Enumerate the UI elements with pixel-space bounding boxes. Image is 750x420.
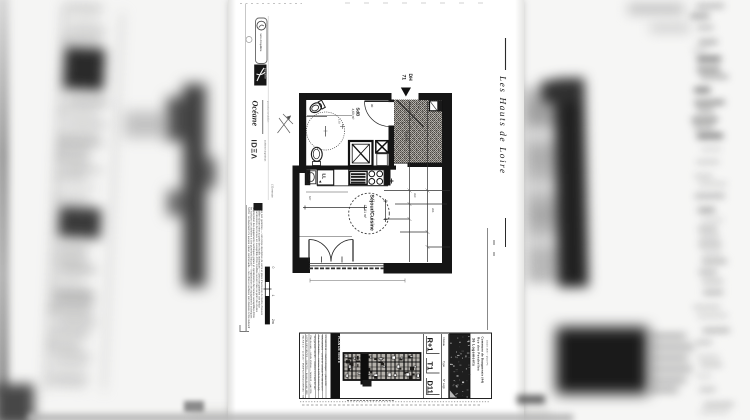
svg-text:1: 1 [271, 295, 275, 297]
svg-text:71: 71 [401, 75, 407, 81]
svg-text:Entrée: Entrée [405, 132, 409, 142]
svg-text:2m: 2m [271, 319, 275, 324]
svg-text:17,81 m²: 17,81 m² [363, 205, 367, 219]
svg-text:NOTA : ce document n'a aucune: NOTA : ce document n'a aucune valeur con… [247, 207, 250, 328]
svg-text:PC 044.020.19 — études techniq: PC 044.020.19 — études techniques — phas… [324, 336, 327, 387]
svg-text:36 logements collectifs — rési: 36 logements collectifs — résidence Les … [313, 336, 316, 391]
svg-text:Rue des Pendrelles — commune d: Rue des Pendrelles — commune de BOUGUENA… [317, 336, 320, 391]
svg-text:Séjour/Cuisine: Séjour/Cuisine [369, 195, 375, 231]
svg-text:LL: LL [322, 174, 327, 180]
svg-text:Type: Type [442, 361, 446, 368]
svg-text:L’Ormeraie: L’Ormeraie [271, 184, 275, 198]
svg-text:Les Hauts de Loire: Les Hauts de Loire [498, 75, 508, 175]
svg-text:Plan de vente — échelle 1/50èm: Plan de vente — échelle 1/50ème — format… [309, 336, 312, 395]
svg-text:N° Logt.: N° Logt. [442, 379, 446, 389]
svg-text:R+1: R+1 [426, 338, 435, 352]
svg-text:0: 0 [271, 267, 275, 269]
svg-text:36 Logements: 36 Logements [472, 338, 476, 366]
svg-text:IND A B C D — 12.05.06 — MODIF: IND A B C D — 12.05.06 — MODIFICATIONS D… [302, 336, 305, 400]
svg-text:Niveau: Niveau [442, 338, 446, 347]
svg-text:Commune de Bouguenais (44): Commune de Bouguenais (44) [481, 337, 485, 384]
svg-text:Rue des Pendrelles: Rue des Pendrelles [476, 337, 480, 371]
svg-text:cotes non garanties — voir not: cotes non garanties — voir notice descri… [260, 207, 263, 316]
svg-text:PLAN DE VENTE: PLAN DE VENTE [337, 336, 341, 364]
svg-text:90: 90 [370, 104, 374, 108]
svg-text:et canalisations des locaux es: et canalisations des locaux est suscepti… [255, 207, 258, 313]
svg-text:dossier 1808 — phase PC: dossier 1808 — phase PC [486, 340, 489, 366]
svg-text:265: 265 [431, 208, 434, 213]
svg-text:1,50: 1,50 [338, 119, 341, 124]
svg-text:architectes ingénieurs: architectes ingénieurs [264, 140, 267, 162]
svg-text:507: 507 [308, 196, 311, 201]
svg-text:terre d’équilibre: terre d’équilibre [259, 34, 262, 52]
svg-text:SdB: SdB [356, 108, 361, 117]
svg-text:350: 350 [413, 193, 416, 198]
svg-text:4,60 m²: 4,60 m² [351, 109, 355, 120]
svg-text:BOUGUENAIS — permis de constru: BOUGUENAIS — permis de construire PC 044… [321, 336, 324, 392]
svg-text:T1: T1 [426, 362, 435, 371]
svg-text:D11: D11 [426, 381, 435, 394]
svg-text:HOTEL DES VENTES — NANTES — do: HOTEL DES VENTES — NANTES — dossier de v… [305, 336, 308, 396]
svg-text:Océane: Océane [251, 101, 260, 127]
svg-text:les surfaces sont données à ti: les surfaces sont données à titre pureme… [249, 207, 252, 319]
svg-text:DH: DH [407, 74, 413, 82]
svg-text:immobilier: immobilier [264, 68, 267, 79]
svg-text:modifiée suivant mise au point: modifiée suivant mise au point des étude… [257, 207, 260, 308]
svg-text:l'implantation des équipements: l'implantation des équipements technique… [252, 207, 255, 319]
svg-text:IDΞΛ: IDΞΛ [250, 140, 259, 160]
